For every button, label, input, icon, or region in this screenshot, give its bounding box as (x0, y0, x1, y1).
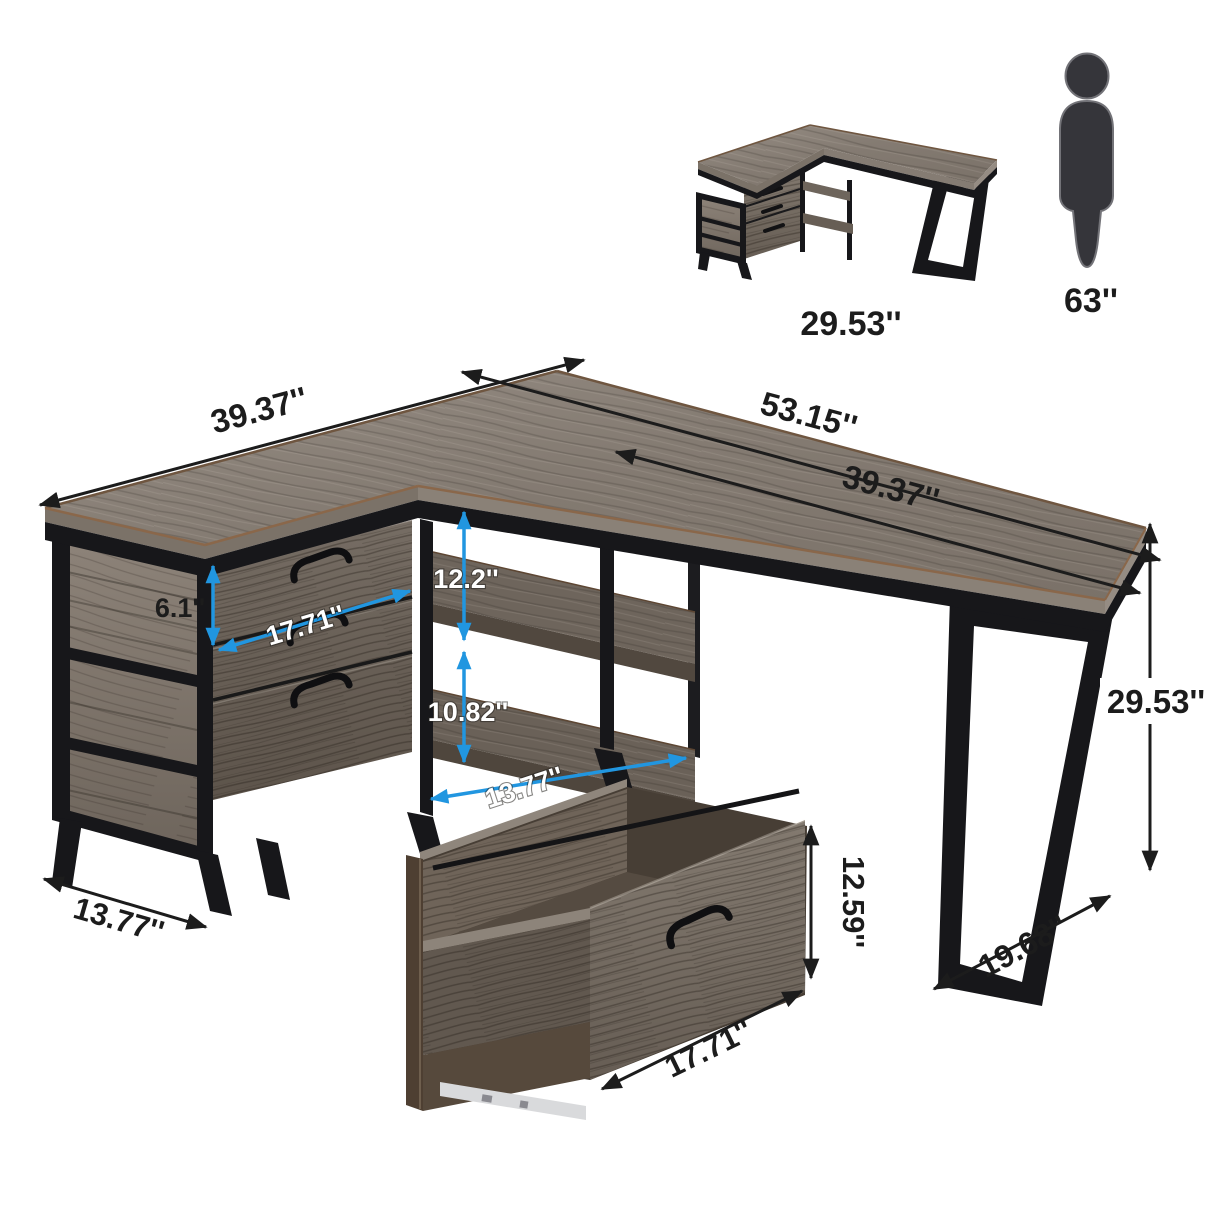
thumbnail-height-label: 29.53'' (800, 305, 901, 343)
cabinet-foot (52, 818, 82, 888)
file-drawer (406, 779, 807, 1120)
shelf-left-post (420, 519, 433, 816)
thumbnail-shelf (803, 213, 853, 234)
drawer-cabinet (52, 520, 412, 916)
person-height-icon: 63'' (1060, 54, 1118, 321)
dim-leg-depth: 19.68'' (972, 908, 1073, 985)
main-desk-illustration (45, 371, 1146, 1120)
shelf-right-post (600, 540, 614, 750)
dim-top-drawer-height: 6.1'' (155, 593, 205, 623)
cabinet-foot (196, 850, 232, 916)
cabinet-foot (256, 838, 290, 900)
reference-desk-thumbnail: 29.53'' (696, 125, 997, 343)
person-height-label: 63'' (1064, 282, 1118, 320)
dim-left-arm-length: 39.37'' (207, 379, 312, 440)
dim-desk-height: 29.53'' (1107, 683, 1205, 720)
dim-lower-shelf-gap: 10.82'' (428, 697, 508, 727)
person-body (1060, 101, 1113, 267)
thumbnail-shelf (803, 181, 850, 201)
dim-cabinet-depth: 13.77'' (70, 890, 168, 949)
dim-file-drawer-height: 12.59'' (836, 856, 871, 948)
dimension-diagram: 29.53'' 63'' (0, 0, 1214, 1214)
dim-upper-shelf-gap: 12.2'' (433, 564, 498, 594)
